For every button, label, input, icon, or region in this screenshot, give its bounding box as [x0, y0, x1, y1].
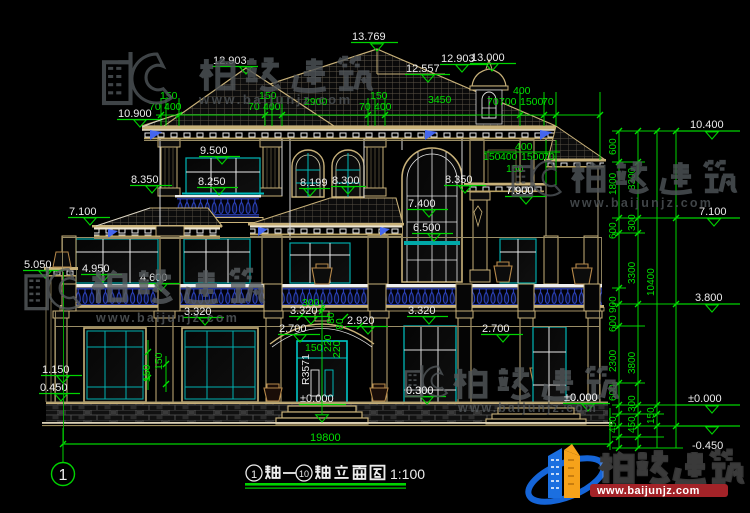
svg-text:150: 150: [506, 163, 524, 175]
svg-text:8.300: 8.300: [332, 175, 360, 187]
svg-text:8.350: 8.350: [131, 174, 159, 186]
svg-text:1: 1: [251, 469, 257, 481]
svg-text:3800: 3800: [627, 351, 638, 374]
svg-text:±0.000: ±0.000: [564, 392, 598, 404]
svg-text:www.baijunjz.com: www.baijunjz.com: [95, 311, 239, 325]
svg-text:450: 450: [627, 416, 638, 433]
svg-text:600: 600: [608, 315, 619, 332]
svg-text:6.500: 6.500: [413, 222, 441, 234]
svg-text:www.baijunjz.com: www.baijunjz.com: [198, 92, 353, 107]
svg-text:13.769: 13.769: [352, 31, 386, 43]
svg-text:300: 300: [627, 395, 638, 412]
svg-text:300: 300: [302, 297, 320, 309]
svg-text:12.557: 12.557: [406, 63, 440, 75]
svg-text:3.800: 3.800: [695, 292, 723, 304]
svg-text:www.baijunjz.com: www.baijunjz.com: [569, 196, 713, 210]
svg-text:10.400: 10.400: [690, 119, 724, 131]
svg-text:3300: 3300: [627, 261, 638, 284]
svg-text:80: 80: [334, 318, 346, 330]
svg-text:4.950: 4.950: [82, 263, 110, 275]
svg-text:400: 400: [374, 101, 392, 113]
svg-text:150: 150: [305, 342, 323, 354]
svg-text:8.199: 8.199: [300, 177, 328, 189]
svg-text:±0.000: ±0.000: [300, 393, 334, 405]
svg-text:220: 220: [331, 340, 343, 358]
svg-text:7.400: 7.400: [408, 198, 436, 210]
svg-text:3.320: 3.320: [408, 305, 436, 317]
svg-text:8.350: 8.350: [445, 174, 473, 186]
svg-text:700: 700: [499, 96, 517, 108]
svg-text:1: 1: [59, 467, 68, 484]
svg-text:13.000: 13.000: [471, 52, 505, 64]
svg-text:1.150: 1.150: [42, 364, 70, 376]
svg-text:±0.000: ±0.000: [688, 393, 722, 405]
svg-text:www.baijunjz.com: www.baijunjz.com: [596, 485, 700, 497]
svg-text:8.250: 8.250: [198, 176, 226, 188]
svg-text:9.500: 9.500: [200, 145, 228, 157]
svg-text:1:100: 1:100: [390, 466, 425, 482]
svg-text:900: 900: [608, 296, 619, 313]
svg-text:7.100: 7.100: [69, 206, 97, 218]
svg-text:7.900: 7.900: [506, 185, 534, 197]
svg-text:19800: 19800: [310, 432, 341, 444]
svg-text:0.300: 0.300: [406, 385, 434, 397]
svg-text:400: 400: [500, 151, 518, 163]
svg-text:10400: 10400: [646, 268, 657, 296]
svg-text:70: 70: [359, 101, 371, 113]
svg-text:1500: 1500: [520, 96, 544, 108]
svg-text:3450: 3450: [428, 94, 452, 106]
svg-text:600: 600: [608, 222, 619, 239]
svg-text:70: 70: [542, 96, 554, 108]
svg-text:400: 400: [164, 101, 182, 113]
svg-text:12.903: 12.903: [441, 53, 475, 65]
svg-text:2.700: 2.700: [279, 323, 307, 335]
svg-text:10: 10: [299, 469, 309, 479]
svg-text:10.900: 10.900: [118, 108, 152, 120]
svg-text:2.700: 2.700: [482, 323, 510, 335]
svg-text:70: 70: [487, 96, 499, 108]
svg-text:R3571: R3571: [300, 354, 312, 385]
svg-text:2300: 2300: [608, 349, 619, 372]
svg-text:300: 300: [627, 214, 638, 231]
svg-text:150: 150: [646, 407, 657, 424]
svg-text:150: 150: [483, 151, 501, 163]
svg-text:150: 150: [153, 352, 165, 370]
svg-text:600: 600: [608, 138, 619, 155]
